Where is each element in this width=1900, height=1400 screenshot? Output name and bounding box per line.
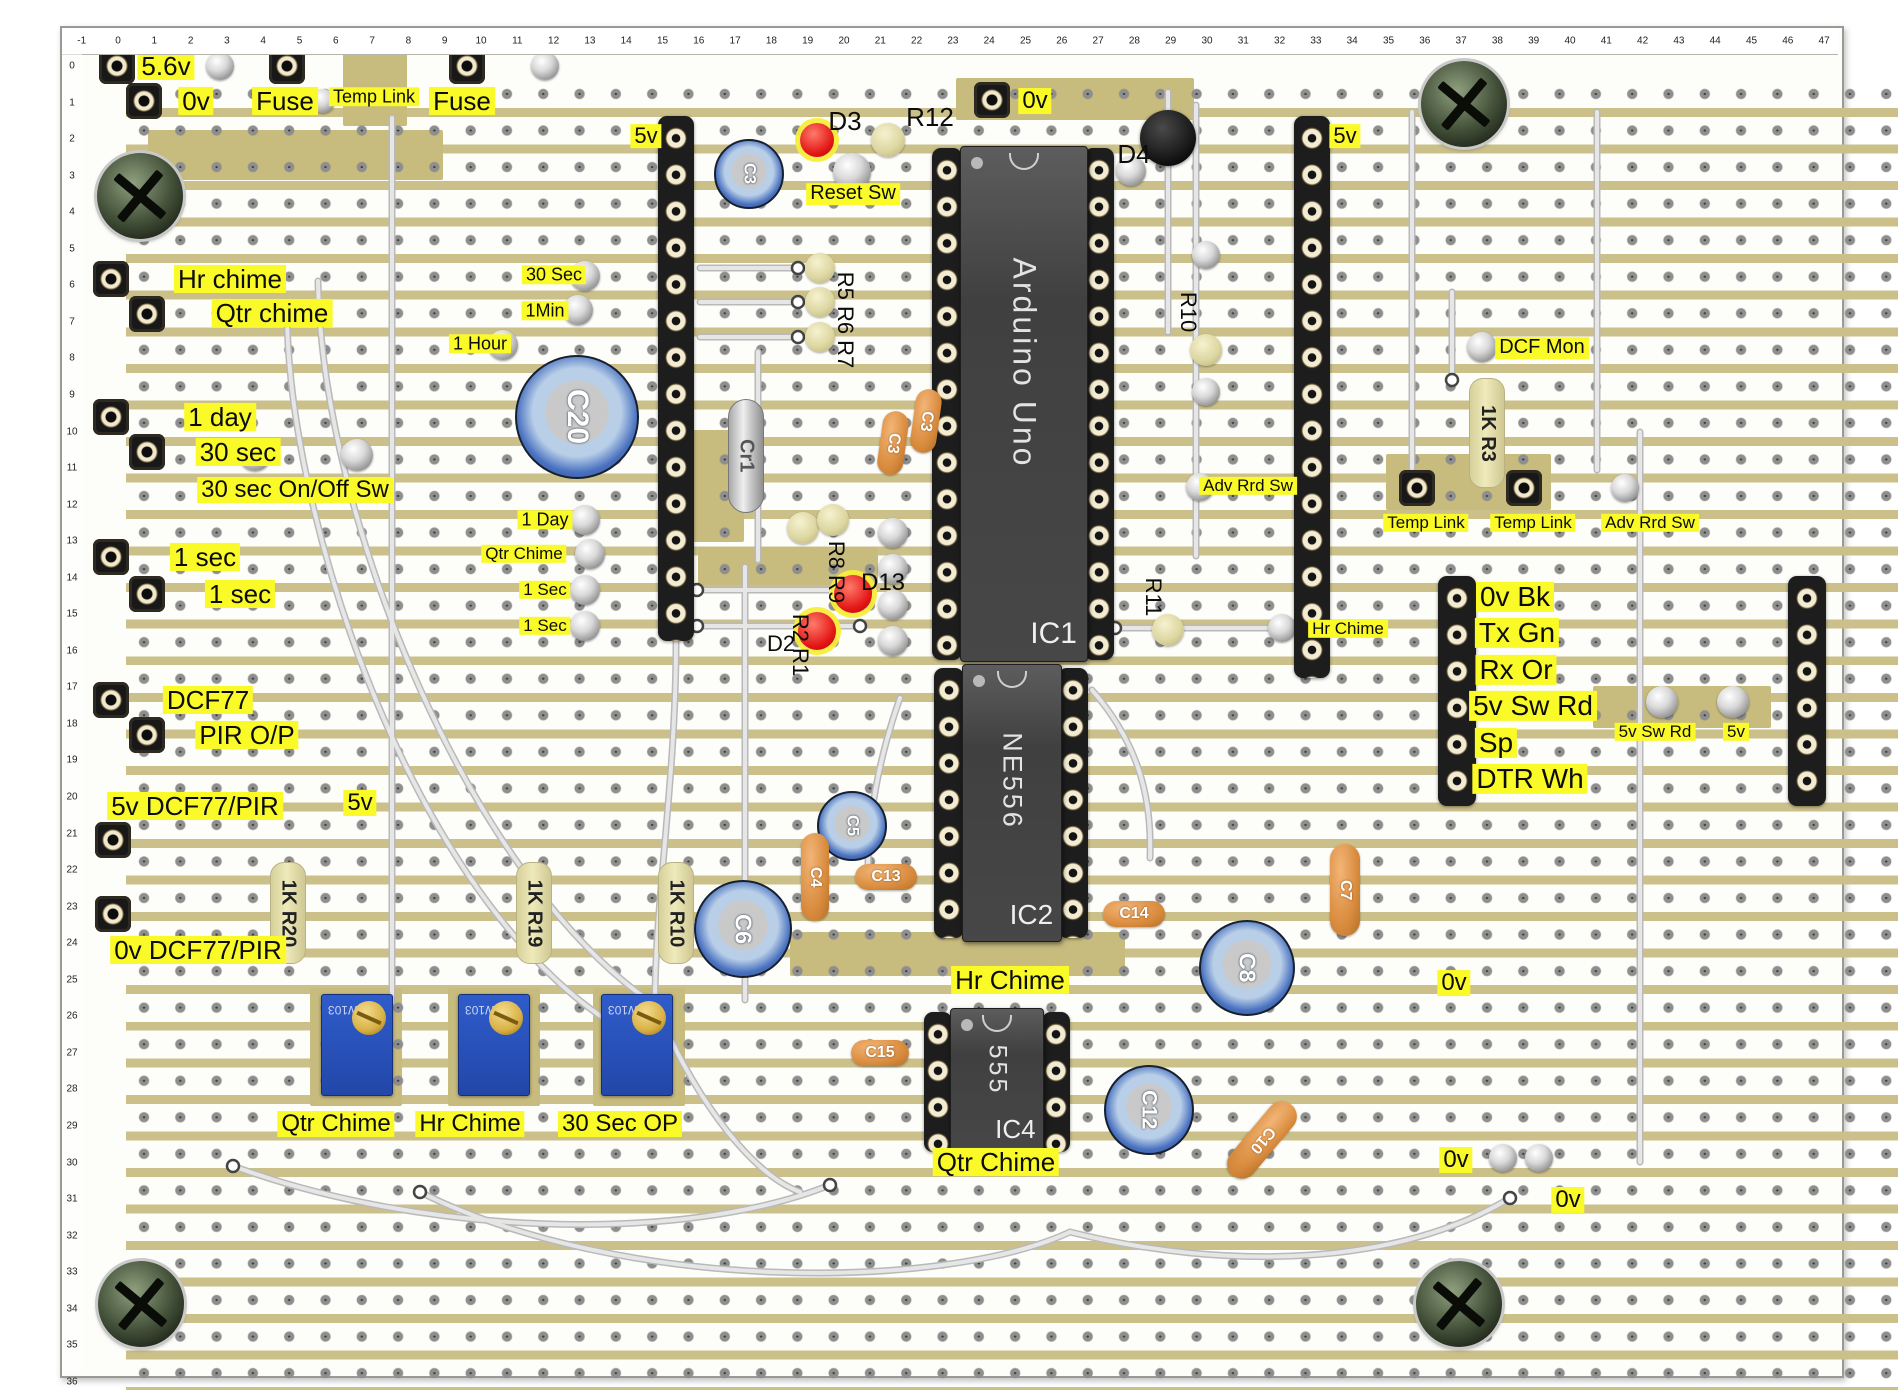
resistor-bead [805,322,835,352]
solder-pin [878,518,908,548]
ruler-left-number: 4 [69,207,75,218]
ruler-top-number: 4 [260,36,266,47]
chip-notch-icon [997,671,1027,688]
ruler-top-number: 15 [657,36,668,47]
capacitor-label: C3 [740,163,759,184]
ic2-ne556-socket [1058,668,1088,938]
ruler-left-number: 8 [69,353,75,364]
solder-socket [1399,470,1435,506]
ic4-555-socket [1042,1012,1070,1152]
capacitor-label: C3 [916,410,937,433]
trimmer-pot: W103 [458,994,530,1096]
ruler-top-number: 38 [1492,36,1503,47]
label-reset-sw: Reset Sw [806,183,900,205]
ruler-top-number: 42 [1637,36,1648,47]
ruler-top-number: 23 [947,36,958,47]
label-0v: 0v [1018,88,1051,114]
label-30-sec-op: 30 Sec OP [558,1111,682,1137]
capacitor-c8: C8 [1199,920,1295,1016]
ic2-ne556-designator: IC2 [1010,899,1054,931]
socket-hole-icon [100,689,122,711]
ruler-left-number: 12 [66,499,77,510]
ruler-top-number: 17 [730,36,741,47]
socket-hole-icon [136,724,158,746]
ruler-top-number: 46 [1782,36,1793,47]
capacitor-label: C15 [865,1044,894,1062]
chip-pin1-dot-icon [973,675,985,687]
label-r2-r1: R2 R1 [788,614,812,676]
socket-hole-icon [133,90,155,112]
ruler-left-number: 9 [69,389,75,400]
label-pir-o-p: PIR O/P [195,721,298,749]
label-5v-sw-rd: 5v Sw Rd [1469,691,1597,721]
capacitor-label: C8 [1234,953,1261,982]
label-dcf77: DCF77 [163,686,253,714]
ruler-left-number: 13 [66,536,77,547]
ruler-top-number: 13 [584,36,595,47]
solder-pin [1525,1144,1553,1172]
ruler-left-number: 22 [66,865,77,876]
chip-notch-icon [982,1015,1012,1032]
ruler-left-number: 0 [69,61,75,72]
capacitor-c3: C3 [714,139,784,209]
label-1-day: 1 day [184,403,256,431]
label-0v: 0v [1437,970,1470,996]
label-5v: 5v [630,124,661,148]
ruler-left-number: 27 [66,1047,77,1058]
socket-hole-icon [1406,477,1428,499]
ruler-top-number: 41 [1601,36,1612,47]
chip-pin1-dot-icon [971,157,983,169]
chip-notch-icon [1009,153,1039,170]
ruler-top-number: 43 [1673,36,1684,47]
ic4-555-label: 555 [983,1045,1012,1096]
resistor-bead [805,287,835,317]
solder-socket [1506,470,1542,506]
ruler-top-number: 28 [1129,36,1140,47]
ruler-top-number: -1 [77,36,86,47]
socket-hole-icon [456,55,478,77]
socket-hole-icon [102,903,124,925]
solder-socket [93,682,129,718]
resistor-bead [1190,334,1222,366]
capacitor-c4: C4 [801,833,829,921]
ruler-left-number: 2 [69,134,75,145]
ruler-top-number: 47 [1819,36,1830,47]
ruler-left-number: 19 [66,755,77,766]
ruler-top-number: 32 [1274,36,1285,47]
resistor-bead [871,123,905,157]
label-1-sec: 1 Sec [519,617,570,635]
capacitor-c15: C15 [851,1040,909,1066]
label-r10: R10 [1176,292,1200,332]
solder-socket [129,434,165,470]
label-hr-chime: Hr chime [174,265,286,293]
resistor-1k-r19: 1K R19 [516,862,552,964]
pin-header [1788,576,1826,806]
ruler-top-number: 45 [1746,36,1757,47]
ic4-555: 555 IC4 [950,1008,1044,1156]
label-0v: 0v [1551,1187,1584,1213]
crystal-label: Cr1 [735,439,758,472]
capacitor-label: C5 [843,815,862,836]
label-fuse: Fuse [429,87,495,115]
mounting-screw [97,153,183,239]
capacitor-label: C3 [883,432,904,455]
solder-pin [341,439,373,471]
resistor-bead [1152,614,1184,646]
stripboard-layout-diagram: Arduino Uno IC1 NE556 IC2 555 IC4C3C20C5… [0,0,1900,1400]
capacitor-label: C13 [871,868,900,886]
label-hr-chime: Hr Chime [415,1111,524,1137]
ic2-ne556-label: NE556 [997,732,1028,830]
label-qtr-chime: Qtr Chime [933,1148,1059,1176]
label-hr-chime: Hr Chime [951,966,1069,994]
socket-hole-icon [102,829,124,851]
ruler-top-number: 37 [1456,36,1467,47]
crystal-cr1: Cr1 [728,399,764,513]
solder-pin [1611,474,1639,502]
socket-hole-icon [100,268,122,290]
label-adv-rrd-sw: Adv Rrd Sw [1199,477,1297,495]
label-r12: R12 [906,103,954,131]
ruler-left-number: 25 [66,974,77,985]
label-qtr-chime: Qtr Chime [481,545,566,563]
label-5v: 5v [1329,124,1360,148]
label-r8-r9: R8 R9 [824,541,848,603]
label-30-sec: 30 sec [196,438,281,466]
label-hr-chime: Hr Chime [1308,620,1388,638]
ruler-left-number: 33 [66,1267,77,1278]
trimmer-pot: W103 [321,994,393,1096]
ruler-top-number: 3 [224,36,230,47]
label-dcf-mon: DCF Mon [1495,337,1589,359]
ruler-left-number: 15 [66,609,77,620]
label-sp: Sp [1475,728,1517,758]
label-temp-link: Temp Link [1490,514,1575,532]
label-1-day: 1 Day [517,510,572,529]
label-1-sec: 1 Sec [519,581,570,599]
label-0v-bk: 0v Bk [1476,582,1554,612]
ruler-top-number: 14 [621,36,632,47]
resistor-1k-r10: 1K R10 [658,862,694,964]
capacitor-c6: C6 [694,880,792,978]
solder-pin [206,52,234,80]
ruler-top-number: 27 [1093,36,1104,47]
ruler-top-number: 25 [1020,36,1031,47]
resistor-bead [787,512,819,544]
solder-pin [878,626,908,656]
ruler-top-number: 40 [1564,36,1575,47]
solder-pin [1192,378,1220,406]
ic1-arduino-label: Arduino Uno [1006,257,1043,468]
ruler-top-number: 29 [1165,36,1176,47]
ruler-top-number: 24 [984,36,995,47]
socket-hole-icon [136,583,158,605]
ruler-left-number: 23 [66,901,77,912]
capacitor-label: C4 [806,867,824,887]
resistor-bead [817,504,849,536]
label-30-sec-on-off-sw: 30 sec On/Off Sw [197,477,393,503]
label-1min: 1Min [521,301,568,320]
label-30-sec: 30 Sec [522,265,586,284]
label-r11: R11 [1141,578,1165,617]
solder-socket [95,822,131,858]
label-temp-link: Temp Link [329,87,419,106]
ruler-top-number: 12 [548,36,559,47]
ruler-left-number: 34 [66,1303,77,1314]
label-tx-gn: Tx Gn [1475,618,1559,648]
ruler-top-number: 7 [369,36,375,47]
ruler-top-number: 16 [693,36,704,47]
ruler-left-number: 31 [66,1194,77,1205]
ruler-top-number: 20 [838,36,849,47]
resistor-label: 1K R19 [523,879,546,947]
ruler-top-number: 0 [115,36,121,47]
label-0v-dcf77-pir: 0v DCF77/PIR [110,936,286,964]
ruler-left-number: 7 [69,316,75,327]
socket-hole-icon [100,546,122,568]
ruler-top-number: 44 [1710,36,1721,47]
capacitor-label: C7 [1336,880,1354,900]
ruler-left-number: 29 [66,1120,77,1131]
label-d3: D3 [828,107,861,135]
ruler-left-number: 16 [66,645,77,656]
ic4-555-socket [924,1012,952,1152]
label-temp-link: Temp Link [1383,514,1468,532]
solder-pin [1489,1144,1517,1172]
ruler-left-number: 26 [66,1011,77,1022]
label-1-sec: 1 sec [170,543,240,571]
solder-pin [570,575,600,605]
solder-pin [1268,614,1296,642]
label-adv-rrd-sw: Adv Rrd Sw [1601,514,1699,532]
solder-socket [129,717,165,753]
ruler-top-number: 39 [1528,36,1539,47]
resistor-bead [805,253,835,283]
ruler-top-number: 11 [512,36,522,47]
solder-socket [93,539,129,575]
socket-hole-icon [106,55,128,77]
trimmer-screw-icon [489,1001,523,1035]
label-dtr-wh: DTR Wh [1472,764,1587,794]
ruler-top-number: 30 [1201,36,1212,47]
ruler-left-number: 35 [66,1340,77,1351]
solder-pin [1192,241,1220,269]
capacitor-c13: C13 [855,864,917,890]
solder-pin [531,52,559,80]
ic2-ne556: NE556 IC2 [962,664,1062,942]
pin-header [1294,116,1330,678]
ic4-555-designator: IC4 [995,1114,1035,1145]
label-5v-sw-rd: 5v Sw Rd [1615,723,1696,741]
solder-pin [1717,686,1749,718]
ruler-top-number: 1 [152,36,158,47]
socket-hole-icon [981,89,1003,111]
mounting-screw [1421,61,1507,147]
capacitor-c12: C12 [1104,1065,1194,1155]
ruler-top-number: 34 [1347,36,1358,47]
label-qtr-chime: Qtr chime [212,299,333,327]
solder-pin [570,611,600,641]
label-fuse: Fuse [252,87,318,115]
mounting-screw [1416,1261,1502,1347]
ruler-left-number: 3 [69,170,75,181]
ruler-left-number: 21 [66,828,77,839]
ruler-top-number: 33 [1310,36,1321,47]
label-1-sec: 1 sec [205,580,275,608]
capacitor-c14: C14 [1103,901,1165,927]
ruler-top-number: 19 [802,36,813,47]
ruler-top-number: 5 [297,36,303,47]
ruler-top-number: 9 [442,36,448,47]
label-5v-dcf77-pir: 5v DCF77/PIR [107,792,283,820]
resistor-1k-r3: 1K R3 [1469,378,1505,488]
ruler-left-number: 20 [66,792,77,803]
label-d13: D13 [861,570,905,596]
ruler-top-number: 35 [1383,36,1394,47]
capacitor-label: C20 [560,389,594,444]
ic1-arduino-designator: IC1 [1030,617,1077,651]
ruler-left-number: 32 [66,1230,77,1241]
ruler-top-number: 6 [333,36,339,47]
label-r5-r6-r7: R5 R6 R7 [833,272,857,369]
ruler-left-number: 5 [69,243,75,254]
ruler-top-number: 31 [1238,36,1249,47]
ruler-left-number: 10 [66,426,77,437]
label-d4: D4 [1117,140,1150,168]
ic1-arduino-socket [1084,148,1114,660]
solder-socket [93,261,129,297]
solder-socket [129,576,165,612]
capacitor-label: C6 [730,914,757,944]
ruler-top-number: 22 [911,36,922,47]
ic1-arduino: Arduino Uno IC1 [960,146,1088,662]
label-0v: 0v [178,87,213,115]
ruler-left-number: 6 [69,280,75,291]
ruler-left-number: 11 [67,463,77,474]
ruler-left-number: 24 [66,938,77,949]
label-0v: 0v [1439,1147,1472,1173]
resistor-label: 1K R10 [665,879,688,947]
socket-hole-icon [136,303,158,325]
socket-hole-icon [1513,477,1535,499]
ruler-left: 0123456789101112131415161718192021222324… [62,54,82,1372]
capacitor-c20: C20 [515,355,639,479]
socket-hole-icon [100,406,122,428]
ruler-left-number: 36 [66,1376,77,1387]
capacitor-label: C12 [1137,1090,1162,1129]
ruler-top-number: 26 [1056,36,1067,47]
socket-hole-icon [136,441,158,463]
ruler-top-number: 21 [875,36,886,47]
ruler-top-number: 18 [766,36,777,47]
ruler-top: -101234567891011121314151617181920212223… [62,28,1838,55]
ruler-left-number: 28 [66,1084,77,1095]
solder-socket [93,399,129,435]
solder-socket [974,82,1010,118]
trimmer-pot: W103 [601,994,673,1096]
ruler-top-number: 10 [475,36,486,47]
socket-hole-icon [276,55,298,77]
ruler-top-number: 2 [188,36,194,47]
resistor-label: 1K R3 [1476,405,1499,462]
label-5v: 5v [1723,723,1749,741]
ruler-left-number: 1 [69,97,75,108]
solder-pin [570,505,600,535]
ruler-top-number: 8 [406,36,412,47]
trimmer-screw-icon [632,1001,666,1035]
chip-pin1-dot-icon [961,1019,973,1031]
label-qtr-chime: Qtr Chime [277,1111,394,1137]
label-rx-or: Rx Or [1475,655,1556,685]
trimmer-screw-icon [352,1001,386,1035]
solder-socket [129,296,165,332]
ic2-ne556-socket [934,668,964,938]
label-5v: 5v [343,790,376,816]
solder-pin [1646,686,1678,718]
solder-pin [575,539,605,569]
ruler-left-number: 30 [66,1157,77,1168]
mounting-screw [98,1261,184,1347]
solder-socket [95,896,131,932]
ruler-top-number: 36 [1419,36,1430,47]
label-5-6v: 5.6v [137,52,194,80]
capacitor-c7: C7 [1330,844,1360,936]
pin-header [658,116,694,641]
ruler-left-number: 17 [66,682,77,693]
capacitor-label: C14 [1119,905,1148,923]
ruler-left-number: 14 [66,572,77,583]
ruler-left-number: 18 [66,718,77,729]
solder-pin [1467,332,1497,362]
solder-socket [126,83,162,119]
label-1-hour: 1 Hour [449,334,511,353]
